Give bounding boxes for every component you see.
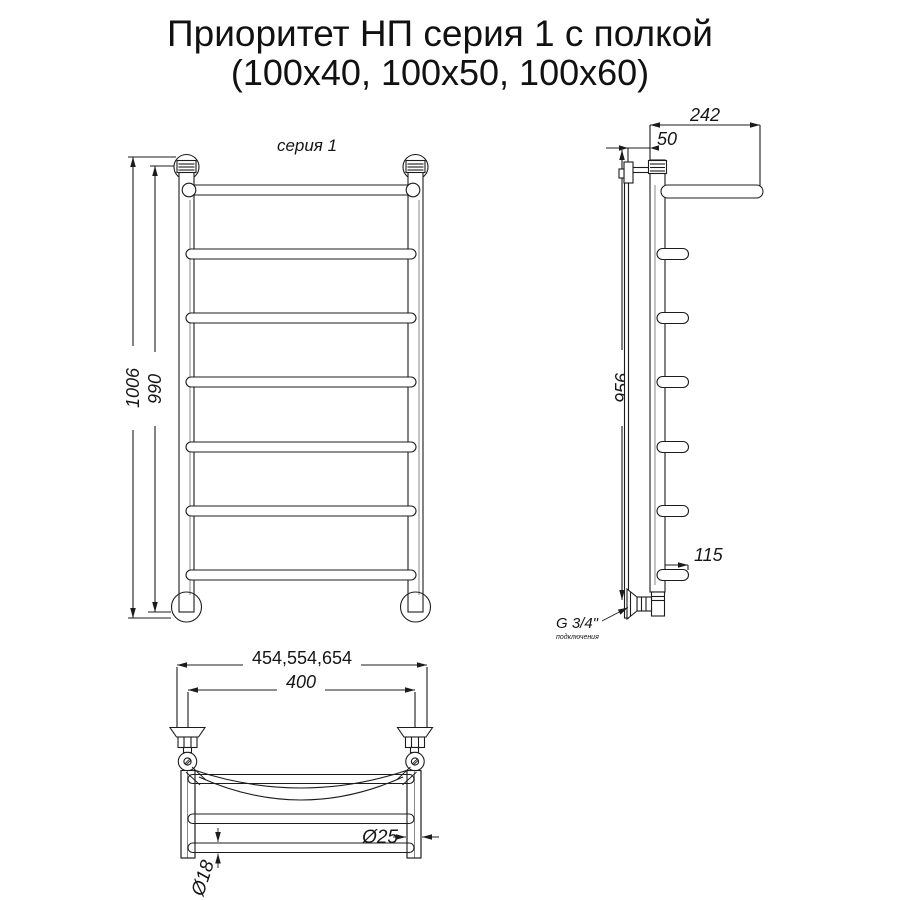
dim-tube-rung: Ø18 [187, 857, 219, 899]
top-right-bracket [398, 728, 433, 771]
dim-shelf-depth: 242 [689, 105, 720, 125]
dim-bottom-depth: 115 [694, 545, 724, 565]
dim-height-axle: 990 [145, 374, 165, 404]
towel-rail-drawing: 1006 990 [0, 0, 900, 900]
dim-width-variants: 454,554,654 [252, 648, 352, 668]
top-view: 454,554,654 400 [170, 648, 439, 899]
bottom-connection-fitting [627, 589, 665, 619]
side-shelf-bar [661, 185, 763, 198]
front-view: 1006 990 [123, 136, 431, 622]
top-left-bracket [170, 728, 205, 771]
thread-note: подключения [556, 633, 599, 641]
dim-mount-spacing: 400 [286, 672, 316, 692]
wall-plate [624, 162, 633, 183]
thread-label: G 3/4" [556, 615, 599, 632]
dim-tube-main: Ø25 [361, 827, 398, 848]
technical-drawing-page: Приоритет НП серия 1 с полкой (100x40, 1… [0, 0, 900, 900]
dim-height-overall: 1006 [123, 367, 143, 408]
series-label: серия 1 [277, 136, 337, 155]
front-rungs [182, 183, 420, 580]
union-nut [637, 597, 652, 611]
side-mount-cap [649, 161, 667, 174]
side-view: 242 50 956 115 [556, 105, 763, 641]
dim-wall-offset: 50 [657, 129, 677, 149]
front-mount-caps [177, 161, 425, 173]
valve-cone [627, 589, 637, 619]
wall-line [625, 183, 629, 618]
